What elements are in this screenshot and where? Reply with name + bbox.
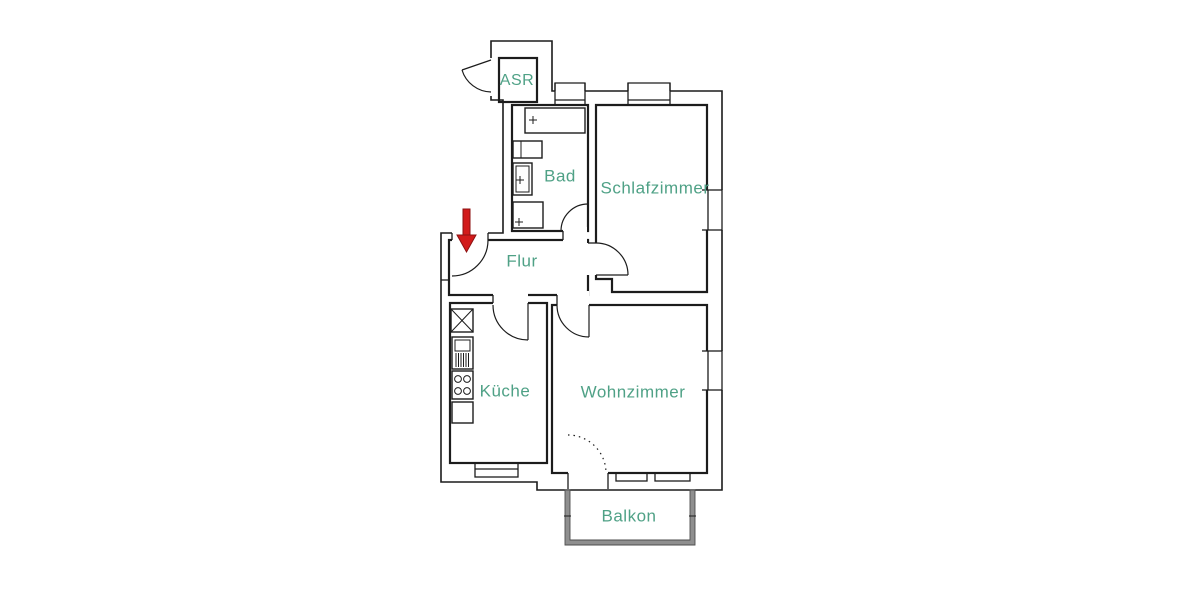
- wohnzimmer-bottom-window-left: [616, 473, 647, 481]
- entrance-arrow-shaft: [463, 209, 470, 236]
- bad-door-opening: [563, 227, 587, 244]
- wohnzimmer-door-opening: [557, 291, 589, 308]
- kueche-label: Küche: [480, 381, 531, 400]
- balkon-label: Balkon: [602, 506, 657, 525]
- kueche-door-opening: [493, 291, 528, 307]
- asr-door-arc: [462, 70, 491, 92]
- schlafzimmer-top-window-gap: [628, 88, 670, 94]
- floor-plan: ASR Bad Schlafzimmer Flur Küche Wohnzimm…: [0, 0, 1200, 600]
- bad-top-window-gap: [555, 88, 585, 94]
- asr-door-opening: [488, 58, 494, 96]
- floor-plan-canvas: ASR Bad Schlafzimmer Flur Küche Wohnzimm…: [0, 0, 1200, 600]
- wohnzimmer-bottom-window-right: [655, 473, 690, 481]
- wohnzimmer-label: Wohnzimmer: [581, 382, 686, 401]
- asr-label: ASR: [500, 72, 534, 89]
- schlafzimmer-door-opening: [584, 243, 600, 275]
- balcony-door-opening: [568, 470, 608, 476]
- schlafzimmer-room-outline: [596, 105, 707, 292]
- asr-door: [462, 60, 491, 92]
- wohnzimmer-right-window-gap: [704, 351, 726, 390]
- schlafzimmer-label: Schlafzimmer: [601, 178, 710, 197]
- flur-label: Flur: [506, 251, 537, 270]
- asr-door-leaf: [462, 60, 491, 70]
- room-schlafzimmer: [596, 105, 707, 292]
- kueche-bottom-window: [475, 463, 518, 477]
- bad-label: Bad: [544, 166, 576, 185]
